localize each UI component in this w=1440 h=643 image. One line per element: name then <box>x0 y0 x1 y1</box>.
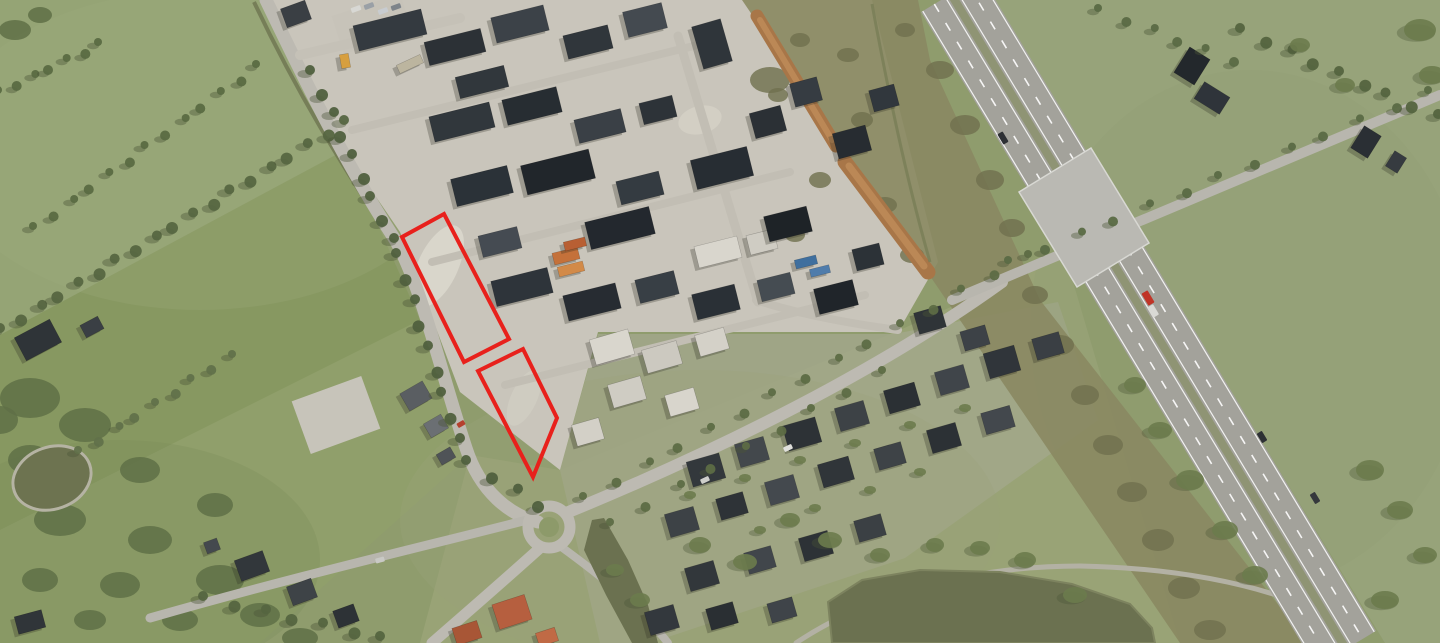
tree <box>1214 171 1222 179</box>
tree <box>579 492 587 500</box>
tree <box>160 131 170 141</box>
tree <box>864 486 876 494</box>
tree <box>400 274 412 286</box>
tree <box>116 422 124 430</box>
tree <box>914 468 926 476</box>
tree <box>801 374 811 384</box>
tree <box>1242 566 1268 584</box>
tree <box>1371 591 1399 609</box>
tree <box>486 472 498 484</box>
aerial-map-viewport[interactable] <box>0 0 1440 643</box>
tree <box>513 484 523 494</box>
tree <box>926 538 944 552</box>
tree <box>612 478 622 488</box>
tree <box>80 49 90 59</box>
tree <box>228 350 236 358</box>
tree <box>461 455 471 465</box>
scrub-vegetation <box>1093 435 1123 455</box>
tree <box>455 433 465 443</box>
tree <box>809 504 821 512</box>
woodland <box>120 457 160 483</box>
tree <box>1040 245 1050 255</box>
tree <box>1094 4 1102 12</box>
tree <box>166 222 178 234</box>
tree <box>959 404 971 412</box>
woodland <box>197 493 233 517</box>
tree <box>198 591 208 601</box>
tree <box>1108 217 1118 227</box>
tree <box>677 480 685 488</box>
tree <box>1024 250 1032 258</box>
tree <box>1288 143 1296 151</box>
tree <box>904 421 916 429</box>
tree <box>739 474 751 482</box>
tree <box>1212 521 1238 539</box>
tree <box>195 104 205 114</box>
tree <box>842 388 852 398</box>
tree <box>15 314 27 326</box>
tree <box>1335 78 1355 92</box>
tree <box>171 389 181 399</box>
tree <box>754 526 766 534</box>
tree <box>532 501 544 513</box>
tree <box>684 491 696 499</box>
tree <box>1334 66 1344 76</box>
tree <box>818 532 842 548</box>
tree <box>347 149 357 159</box>
tree <box>129 413 139 423</box>
scrub-vegetation <box>999 219 1025 237</box>
tree <box>1235 23 1245 33</box>
woodland <box>0 20 31 40</box>
scrub-vegetation <box>926 61 954 79</box>
tree <box>870 548 890 562</box>
tree <box>151 398 159 406</box>
tree <box>1202 44 1210 52</box>
tree <box>1172 37 1182 47</box>
tree <box>990 270 1000 280</box>
tree <box>217 87 225 95</box>
tree <box>630 593 650 607</box>
tree <box>188 207 198 217</box>
tree <box>1229 57 1239 67</box>
scrub-vegetation <box>1071 385 1099 405</box>
tree <box>436 387 446 397</box>
tree <box>1151 24 1159 32</box>
woodland <box>22 568 58 592</box>
tree <box>689 537 711 553</box>
tree <box>74 446 82 454</box>
tree <box>929 305 939 315</box>
tree <box>641 502 651 512</box>
tree <box>1290 38 1310 52</box>
tree <box>1063 587 1087 603</box>
tree <box>303 138 313 148</box>
tree <box>389 233 399 243</box>
scrub-vegetation <box>837 48 859 62</box>
tree <box>29 222 37 230</box>
tree <box>1078 228 1086 236</box>
tree <box>334 131 346 143</box>
tree <box>1404 19 1436 41</box>
tree <box>878 366 886 374</box>
tree <box>84 185 94 195</box>
tree <box>1356 114 1364 122</box>
tree <box>305 65 315 75</box>
tree <box>606 564 624 576</box>
tree <box>208 199 220 211</box>
scrub-vegetation <box>1022 286 1048 304</box>
tree <box>1424 86 1432 94</box>
tree <box>1406 101 1418 113</box>
tree <box>339 115 349 125</box>
tree <box>94 437 104 447</box>
aerial-imagery[interactable] <box>0 0 1440 643</box>
scrub-vegetation <box>851 112 873 128</box>
scrub-vegetation <box>950 115 980 135</box>
tree <box>12 81 22 91</box>
tree <box>896 319 904 327</box>
tree <box>224 184 234 194</box>
scrub-vegetation <box>1142 529 1174 551</box>
woodland <box>59 408 111 442</box>
woodland <box>128 526 172 554</box>
tree <box>862 339 872 349</box>
scrub-vegetation <box>1194 620 1226 640</box>
tree <box>740 409 750 419</box>
tree <box>423 341 433 351</box>
tree <box>410 294 420 304</box>
tree <box>606 518 614 526</box>
tree <box>130 245 142 257</box>
tree <box>1381 88 1391 98</box>
tree <box>1413 547 1437 563</box>
tree <box>229 601 241 613</box>
scrub-vegetation <box>790 33 810 47</box>
tree <box>780 513 800 527</box>
tree <box>51 291 63 303</box>
tree <box>187 374 195 382</box>
tree <box>1356 460 1384 480</box>
tree <box>432 367 444 379</box>
tree <box>777 426 787 436</box>
tree <box>646 457 654 465</box>
tree <box>281 153 293 165</box>
tree <box>182 114 190 122</box>
tree <box>1182 188 1192 198</box>
tree <box>376 215 388 227</box>
tree <box>70 195 78 203</box>
tree <box>1176 470 1204 490</box>
tree <box>391 248 401 258</box>
tree <box>807 404 815 412</box>
tree <box>286 614 298 626</box>
tree <box>318 618 328 628</box>
scrub-vegetation <box>895 23 915 37</box>
tree <box>1121 17 1131 27</box>
tree <box>1124 377 1146 393</box>
tree <box>1260 37 1272 49</box>
tree <box>349 627 361 639</box>
tree <box>835 354 843 362</box>
scrub-vegetation <box>1117 482 1147 502</box>
tree <box>125 158 135 168</box>
tree <box>1146 199 1154 207</box>
tree <box>110 254 120 264</box>
woodland <box>100 572 140 598</box>
tree <box>445 413 457 425</box>
tree <box>1307 58 1319 70</box>
tree <box>365 191 375 201</box>
woodland <box>28 7 52 23</box>
tree <box>206 365 216 375</box>
tree <box>73 277 83 287</box>
tree <box>413 320 425 332</box>
tree <box>1250 160 1260 170</box>
tree <box>105 168 113 176</box>
tree <box>316 89 328 101</box>
tree <box>244 176 256 188</box>
tree <box>1318 132 1328 142</box>
tree <box>49 212 59 222</box>
tree <box>1148 422 1172 438</box>
tree <box>1004 256 1012 264</box>
tree <box>261 604 271 614</box>
tree <box>733 554 757 570</box>
tree <box>742 442 750 450</box>
tree <box>706 464 716 474</box>
tree <box>673 443 683 453</box>
scrub-vegetation <box>809 172 831 188</box>
tree <box>707 423 715 431</box>
scrub-vegetation <box>1168 577 1200 599</box>
tree <box>358 173 370 185</box>
tree <box>375 631 385 641</box>
scrub-vegetation <box>976 170 1004 190</box>
tree <box>957 285 965 293</box>
tree <box>43 65 53 75</box>
roundabout-island <box>539 517 559 537</box>
tree <box>252 60 260 68</box>
tree <box>236 77 246 87</box>
tree <box>794 456 806 464</box>
tree <box>768 388 776 396</box>
tree <box>141 141 149 149</box>
tree <box>94 38 102 46</box>
tree <box>94 268 106 280</box>
woodland <box>74 610 106 630</box>
tree <box>849 439 861 447</box>
tree <box>1387 501 1413 519</box>
tree <box>329 107 339 117</box>
tree <box>970 541 990 555</box>
tree <box>1014 552 1036 568</box>
tree <box>63 54 71 62</box>
tree <box>1359 80 1371 92</box>
